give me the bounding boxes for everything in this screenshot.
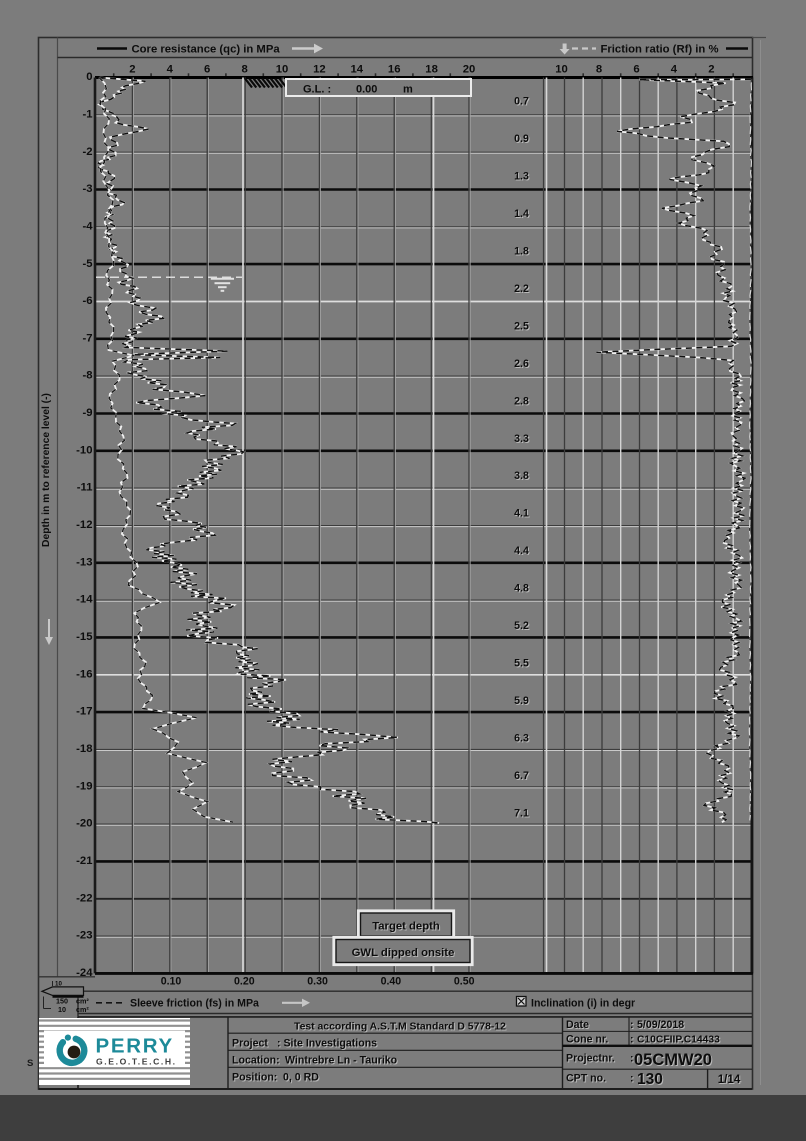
svg-text:-14: -14 [76, 594, 93, 606]
svg-text:4.8: 4.8 [514, 583, 529, 595]
svg-text:Project: Project [232, 1038, 268, 1050]
svg-text:0.00: 0.00 [356, 84, 377, 96]
svg-text:3.3: 3.3 [514, 433, 529, 445]
svg-text:5.9: 5.9 [514, 695, 529, 707]
svg-text:0.10: 0.10 [161, 976, 182, 988]
svg-text:Position:: Position: [232, 1072, 277, 1084]
svg-text:-20: -20 [76, 818, 92, 830]
svg-text::: : [630, 1053, 634, 1065]
svg-text:0.20: 0.20 [234, 976, 255, 988]
svg-text:5.2: 5.2 [514, 620, 529, 632]
svg-text:1.4: 1.4 [514, 208, 529, 220]
svg-text:-21: -21 [76, 855, 92, 867]
svg-text::: : [630, 1034, 634, 1046]
svg-text:0.50: 0.50 [454, 976, 475, 988]
svg-text:2: 2 [708, 64, 714, 76]
svg-text:2.5: 2.5 [514, 320, 529, 332]
svg-text:2.8: 2.8 [514, 395, 529, 407]
svg-text:S: S [27, 1058, 33, 1069]
svg-text:-19: -19 [76, 780, 92, 792]
svg-text:m: m [403, 84, 413, 96]
svg-text:: Site Investigations: : Site Investigations [277, 1038, 377, 1050]
svg-text:6: 6 [633, 64, 639, 76]
svg-text:G.E.O.T.E.C.H.: G.E.O.T.E.C.H. [96, 1057, 177, 1067]
svg-text:Target depth: Target depth [372, 921, 440, 933]
svg-text:Core resistance (qc) in MPa: Core resistance (qc) in MPa [132, 44, 281, 56]
svg-text:Location:: Location: [232, 1055, 280, 1067]
svg-text:-16: -16 [76, 668, 92, 680]
svg-text:-7: -7 [82, 332, 92, 344]
svg-text:-6: -6 [82, 295, 92, 307]
svg-text:6: 6 [204, 64, 210, 76]
svg-text:16: 16 [388, 64, 401, 76]
svg-text:GWL dipped onsite: GWL dipped onsite [352, 947, 455, 959]
svg-text:-24: -24 [76, 967, 93, 979]
svg-text:0, 0 RD: 0, 0 RD [283, 1072, 319, 1084]
svg-text:-8: -8 [82, 370, 92, 382]
svg-text:-10: -10 [76, 444, 92, 456]
svg-text:5.5: 5.5 [514, 658, 529, 670]
svg-text:6.3: 6.3 [514, 732, 529, 744]
svg-text:1/14: 1/14 [718, 1073, 741, 1086]
svg-text:05CMW20: 05CMW20 [634, 1051, 712, 1069]
svg-text:-12: -12 [76, 519, 92, 531]
svg-text::: : [630, 1073, 634, 1085]
svg-text:-2: -2 [82, 146, 92, 158]
svg-text::: : [630, 1019, 634, 1031]
svg-text:10: 10 [555, 64, 568, 76]
svg-text:5/09/2018: 5/09/2018 [637, 1019, 684, 1031]
svg-text:12: 12 [313, 64, 326, 76]
svg-text:-17: -17 [76, 706, 92, 718]
svg-text:Projectnr.: Projectnr. [566, 1053, 615, 1065]
svg-text:0.40: 0.40 [381, 976, 402, 988]
svg-text:Cone nr.: Cone nr. [566, 1034, 608, 1046]
svg-text:0: 0 [86, 71, 92, 83]
svg-text:20: 20 [463, 64, 476, 76]
svg-text:1.8: 1.8 [514, 246, 529, 258]
svg-text:8: 8 [241, 64, 247, 76]
svg-text:10: 10 [276, 64, 289, 76]
svg-text:-1: -1 [82, 108, 92, 120]
svg-text:2: 2 [129, 64, 135, 76]
svg-text:-23: -23 [76, 930, 92, 942]
svg-text:Test according A.S.T.M Standar: Test according A.S.T.M Standard D 5778-1… [294, 1022, 506, 1033]
svg-text:-9: -9 [82, 407, 92, 419]
svg-text:-11: -11 [77, 482, 93, 494]
svg-text:18: 18 [425, 64, 438, 76]
svg-text:2.6: 2.6 [514, 358, 529, 370]
svg-text:6.7: 6.7 [514, 770, 529, 782]
svg-text:-15: -15 [76, 631, 92, 643]
svg-text:-4: -4 [82, 220, 93, 232]
svg-text:-5: -5 [82, 258, 92, 270]
svg-text:-18: -18 [76, 743, 92, 755]
svg-text:4: 4 [671, 64, 678, 76]
svg-text:4: 4 [167, 64, 174, 76]
svg-text:0.7: 0.7 [514, 96, 529, 108]
svg-text:PERRY: PERRY [96, 1035, 174, 1058]
svg-text:130: 130 [637, 1071, 663, 1088]
svg-text:Sleeve friction (fs) in MPa: Sleeve friction (fs) in MPa [130, 998, 259, 1010]
svg-text:2.2: 2.2 [514, 283, 529, 295]
svg-text:8: 8 [596, 64, 602, 76]
svg-text:-22: -22 [76, 892, 92, 904]
svg-text:4.4: 4.4 [514, 545, 529, 557]
svg-text:cm²: cm² [76, 1005, 89, 1014]
svg-text:Depth in m to reference level: Depth in m to reference level (-) [41, 393, 52, 547]
svg-text:CPT no.: CPT no. [566, 1073, 606, 1085]
svg-text:3.8: 3.8 [514, 470, 529, 482]
svg-text:10: 10 [58, 1005, 66, 1014]
svg-text:14: 14 [351, 64, 364, 76]
svg-text:7.1: 7.1 [514, 807, 529, 819]
svg-text:0.30: 0.30 [307, 976, 328, 988]
svg-text:10: 10 [55, 981, 62, 988]
svg-text:4.1: 4.1 [514, 508, 529, 520]
svg-text:C10CFIIP.C14433: C10CFIIP.C14433 [637, 1035, 720, 1046]
svg-text:-13: -13 [76, 556, 92, 568]
svg-text:-3: -3 [82, 183, 92, 195]
svg-text:Friction ratio (Rf) in %: Friction ratio (Rf) in % [601, 44, 719, 56]
svg-text:0.9: 0.9 [514, 133, 529, 145]
svg-text:Inclination (i) in degr: Inclination (i) in degr [531, 998, 635, 1010]
svg-text:Date: Date [566, 1019, 589, 1031]
svg-text:G.L. :: G.L. : [303, 84, 331, 96]
svg-text:1.3: 1.3 [514, 171, 529, 183]
svg-text:Wintrebre Ln - Tauriko: Wintrebre Ln - Tauriko [285, 1055, 398, 1067]
